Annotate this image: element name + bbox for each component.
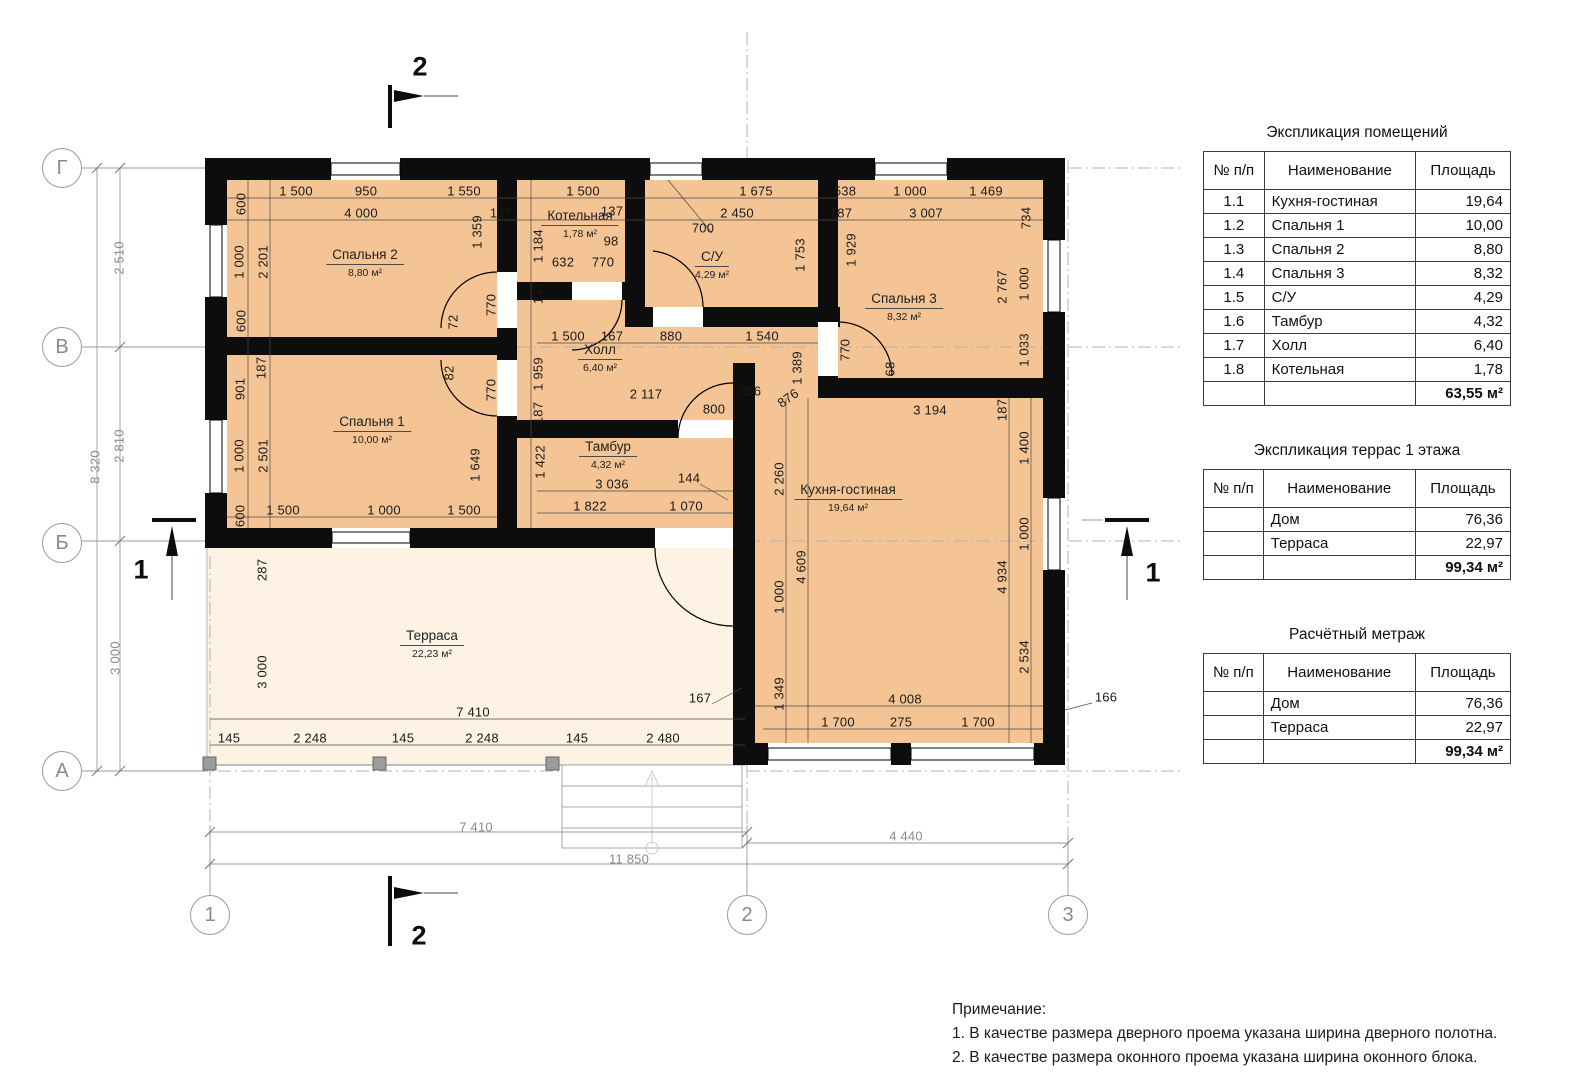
room-area: 8,80 м² bbox=[326, 265, 404, 279]
table-cell: Спальня 3 bbox=[1264, 262, 1415, 286]
dimension-label: 2 248 bbox=[293, 731, 327, 746]
note-line-1: 1. В качестве размера дверного проема ук… bbox=[952, 1022, 1497, 1046]
dimension-label: 1 959 bbox=[531, 357, 546, 391]
dimension-label: 187 bbox=[830, 206, 852, 221]
table-cell bbox=[1204, 382, 1265, 406]
table-header-cell: Наименование bbox=[1264, 152, 1415, 190]
section-marker-label: 1 bbox=[1145, 558, 1160, 589]
dimension-label: 2 117 bbox=[630, 387, 663, 402]
table-row: 1.7Холл6,40 bbox=[1204, 334, 1511, 358]
dimension-label: 1 000 bbox=[232, 245, 247, 279]
dimension-label: 1 700 bbox=[961, 715, 995, 730]
table-cell bbox=[1204, 692, 1264, 716]
dimension-label: 167 bbox=[689, 691, 711, 706]
dimension-label: 145 bbox=[392, 731, 414, 746]
dimension-label: 72 bbox=[446, 315, 461, 330]
table-cell: 1,78 bbox=[1416, 358, 1511, 382]
explication-table: № п/пНаименованиеПлощадьДом76,36Терраса2… bbox=[1203, 469, 1511, 580]
dimension-label: 1 675 bbox=[739, 184, 773, 199]
dimension-label: 1 359 bbox=[470, 215, 485, 249]
room-label: Спальня 28,80 м² bbox=[326, 247, 404, 279]
section-marker-label: 2 bbox=[412, 52, 427, 83]
table-header-cell: Наименование bbox=[1263, 470, 1415, 508]
dimension-label: 2 450 bbox=[720, 206, 754, 221]
table-cell: Спальня 1 bbox=[1264, 214, 1415, 238]
dimension-label: 770 bbox=[592, 255, 614, 270]
dimension-label: 1 000 bbox=[1017, 267, 1032, 301]
table-block-3: Расчётный метраж№ п/пНаименованиеПлощадь… bbox=[1203, 626, 1511, 764]
floor-plan-sheet: 1 5009501 5501 50071 6755381 0001 4694 0… bbox=[0, 0, 1577, 1080]
table-cell: Котельная bbox=[1264, 358, 1415, 382]
dimension-label: 1 000 bbox=[367, 503, 401, 518]
table-total-row: 99,34 м² bbox=[1204, 556, 1511, 580]
room-label: Кухня-гостиная19,64 м² bbox=[794, 482, 902, 514]
axis-marker-А: А bbox=[42, 751, 82, 791]
dimension-label: 356 bbox=[739, 384, 761, 399]
dimension-label: 4 609 bbox=[794, 550, 809, 584]
dimension-label: 145 bbox=[566, 731, 588, 746]
dimension-label: 3 194 bbox=[913, 403, 947, 418]
room-area: 4,32 м² bbox=[579, 457, 637, 471]
dimension-label: 1 033 bbox=[1017, 333, 1032, 367]
table-row: Терраса22,97 bbox=[1204, 716, 1511, 740]
axis-marker-1: 1 bbox=[190, 895, 230, 935]
table-row: 1.8Котельная1,78 bbox=[1204, 358, 1511, 382]
dimension-label: 2 510 bbox=[112, 241, 127, 275]
room-area: 8,32 м² bbox=[865, 309, 943, 323]
table-header-cell: Наименование bbox=[1263, 654, 1415, 692]
dimension-label: 770 bbox=[838, 339, 853, 361]
axis-marker-В: В bbox=[42, 327, 82, 367]
table-cell bbox=[1204, 532, 1264, 556]
table-cell: 4,32 bbox=[1416, 310, 1511, 334]
dimension-label: 4 008 bbox=[888, 692, 922, 707]
table-cell: 8,80 bbox=[1416, 238, 1511, 262]
dimension-label: 187 bbox=[531, 402, 546, 424]
table-cell: 19,64 bbox=[1416, 190, 1511, 214]
room-name: Спальня 2 bbox=[326, 247, 404, 265]
table-cell bbox=[1264, 382, 1415, 406]
room-name: Котельная bbox=[541, 208, 618, 226]
dimension-label: 2 534 bbox=[1017, 640, 1032, 674]
dimension-label: 7 bbox=[624, 184, 631, 199]
table-cell: 1.6 bbox=[1204, 310, 1265, 334]
dimension-label: 2 201 bbox=[256, 245, 271, 279]
dimension-label: 145 bbox=[218, 731, 240, 746]
table-header-cell: № п/п bbox=[1204, 470, 1264, 508]
table-cell: 1.4 bbox=[1204, 262, 1265, 286]
room-name: Терраса bbox=[400, 628, 464, 646]
section-marker-label: 1 bbox=[133, 555, 148, 586]
dimension-label: 632 bbox=[552, 255, 574, 270]
room-area: 10,00 м² bbox=[333, 432, 411, 446]
dimension-label: 600 bbox=[234, 193, 249, 215]
dimension-label: 538 bbox=[834, 184, 856, 199]
table-header-cell: Площадь bbox=[1416, 152, 1511, 190]
dimension-label: 600 bbox=[233, 505, 248, 527]
dimension-label: 1 540 bbox=[745, 329, 779, 344]
dimension-label: 800 bbox=[703, 402, 725, 417]
explication-table: № п/пНаименованиеПлощадь1.1Кухня-гостина… bbox=[1203, 151, 1511, 406]
table-cell: Терраса bbox=[1263, 716, 1415, 740]
dimension-label: 7 410 bbox=[456, 705, 490, 720]
room-area: 22,23 м² bbox=[400, 646, 464, 660]
dimension-label: 68 bbox=[883, 362, 898, 377]
table-cell: 1.7 bbox=[1204, 334, 1265, 358]
table-row: 1.2Спальня 110,00 bbox=[1204, 214, 1511, 238]
room-label: Тамбур4,32 м² bbox=[579, 439, 637, 471]
dimension-label: 1 422 bbox=[533, 445, 548, 479]
dimension-label: 2 810 bbox=[112, 429, 127, 463]
room-area: 6,40 м² bbox=[578, 360, 622, 374]
dimension-label: 275 bbox=[890, 715, 912, 730]
dimension-label: 734 bbox=[1019, 207, 1034, 229]
room-area: 19,64 м² bbox=[794, 500, 902, 514]
table-row: Дом76,36 bbox=[1204, 692, 1511, 716]
dimension-label: 3 007 bbox=[909, 206, 943, 221]
dimension-label: 287 bbox=[255, 559, 270, 581]
room-label: Спальня 110,00 м² bbox=[333, 414, 411, 446]
room-label: С/У4,29 м² bbox=[695, 249, 729, 281]
table-title: Расчётный метраж bbox=[1203, 626, 1511, 644]
table-cell bbox=[1263, 740, 1415, 764]
dimension-label: 1 389 bbox=[790, 351, 805, 385]
dimension-label: 2 767 bbox=[995, 270, 1010, 304]
dimension-label: 1 500 bbox=[566, 184, 600, 199]
table-row: 1.6Тамбур4,32 bbox=[1204, 310, 1511, 334]
table-cell: 22,97 bbox=[1415, 716, 1510, 740]
dimension-label: 4 440 bbox=[889, 829, 923, 844]
dimension-label: 1 500 bbox=[447, 503, 481, 518]
table-cell: С/У bbox=[1264, 286, 1415, 310]
notes-title: Примечание: bbox=[952, 998, 1497, 1022]
room-name: Спальня 3 bbox=[865, 291, 943, 309]
room-name: Холл bbox=[578, 342, 622, 360]
table-cell: 8,32 bbox=[1416, 262, 1511, 286]
room-name: Тамбур bbox=[579, 439, 637, 457]
table-title: Экспликация террас 1 этажа bbox=[1203, 442, 1511, 460]
dimension-label: 3 000 bbox=[255, 655, 270, 689]
table-header-cell: № п/п bbox=[1204, 152, 1265, 190]
table-cell: 22,97 bbox=[1415, 532, 1510, 556]
dimension-label: 187 bbox=[995, 399, 1010, 421]
dimension-label: 700 bbox=[692, 221, 714, 236]
room-name: Спальня 1 bbox=[333, 414, 411, 432]
table-cell bbox=[1204, 716, 1264, 740]
room-area: 1,78 м² bbox=[541, 226, 618, 240]
table-row: Дом76,36 bbox=[1204, 508, 1511, 532]
dimension-label: 1 349 bbox=[772, 677, 787, 711]
table-cell: Тамбур bbox=[1264, 310, 1415, 334]
table-cell: 1.5 bbox=[1204, 286, 1265, 310]
room-name: Кухня-гостиная bbox=[794, 482, 902, 500]
table-cell: Дом bbox=[1263, 508, 1415, 532]
dimension-label: 4 000 bbox=[344, 206, 378, 221]
notes-block: Примечание: 1. В качестве размера дверно… bbox=[952, 998, 1497, 1070]
table-header-cell: Площадь bbox=[1415, 654, 1510, 692]
table-total-row: 99,34 м² bbox=[1204, 740, 1511, 764]
table-cell: 1.2 bbox=[1204, 214, 1265, 238]
dimension-label: 1 469 bbox=[969, 184, 1003, 199]
dimension-label: 137 bbox=[490, 206, 512, 221]
table-row: 1.4Спальня 38,32 bbox=[1204, 262, 1511, 286]
dimension-label: 770 bbox=[484, 294, 499, 316]
dimension-label: 1 070 bbox=[669, 499, 703, 514]
table-cell: 1.3 bbox=[1204, 238, 1265, 262]
table-total-row: 63,55 м² bbox=[1204, 382, 1511, 406]
table-cell: Дом bbox=[1263, 692, 1415, 716]
table-row: 1.3Спальня 28,80 bbox=[1204, 238, 1511, 262]
table-row: 1.5С/У4,29 bbox=[1204, 286, 1511, 310]
room-label: Холл6,40 м² bbox=[578, 342, 622, 374]
table-total-value: 99,34 м² bbox=[1415, 556, 1510, 580]
table-header-cell: № п/п bbox=[1204, 654, 1264, 692]
dimension-label: 166 bbox=[1095, 690, 1117, 705]
table-block-1: Экспликация помещений№ п/пНаименованиеПл… bbox=[1203, 124, 1511, 406]
dimension-label: 2 260 bbox=[772, 462, 787, 496]
dimension-label: 1 000 bbox=[1017, 517, 1032, 551]
room-name: С/У bbox=[695, 249, 729, 267]
table-total-value: 63,55 м² bbox=[1416, 382, 1511, 406]
dimension-label: 1 000 bbox=[893, 184, 927, 199]
table-cell: 76,36 bbox=[1415, 692, 1510, 716]
room-label: Терраса22,23 м² bbox=[400, 628, 464, 660]
explication-table: № п/пНаименованиеПлощадьДом76,36Терраса2… bbox=[1203, 653, 1511, 764]
dimension-label: 1 753 bbox=[793, 238, 808, 272]
table-title: Экспликация помещений bbox=[1203, 124, 1511, 142]
dimension-label: 137 bbox=[531, 282, 546, 304]
table-row: Терраса22,97 bbox=[1204, 532, 1511, 556]
dimension-label: 880 bbox=[660, 329, 682, 344]
dimension-label: 2 501 bbox=[256, 439, 271, 473]
table-cell: Холл bbox=[1264, 334, 1415, 358]
axis-marker-Г: Г bbox=[42, 148, 82, 188]
dimension-label: 1 550 bbox=[447, 184, 481, 199]
table-cell bbox=[1263, 556, 1415, 580]
dimension-label: 187 bbox=[254, 357, 269, 379]
table-cell: 1.8 bbox=[1204, 358, 1265, 382]
table-row: 1.1Кухня-гостиная19,64 bbox=[1204, 190, 1511, 214]
dimension-label: 82 bbox=[442, 366, 457, 381]
dimension-label: 1 822 bbox=[573, 499, 607, 514]
table-cell: 1.1 bbox=[1204, 190, 1265, 214]
dimension-label: 1 500 bbox=[266, 503, 300, 518]
table-block-2: Экспликация террас 1 этажа№ п/пНаименова… bbox=[1203, 442, 1511, 580]
dimension-label: 144 bbox=[678, 471, 700, 486]
table-header-cell: Площадь bbox=[1415, 470, 1510, 508]
dimension-label: 8 320 bbox=[88, 450, 103, 484]
dimension-label: 1 000 bbox=[232, 439, 247, 473]
dimension-label: 3 000 bbox=[108, 641, 123, 675]
table-cell: 6,40 bbox=[1416, 334, 1511, 358]
dimension-label: 1 500 bbox=[279, 184, 313, 199]
dimension-label: 770 bbox=[484, 379, 499, 401]
dimension-label: 7 410 bbox=[459, 820, 493, 835]
table-total-value: 99,34 м² bbox=[1415, 740, 1510, 764]
dimension-label: 950 bbox=[355, 184, 377, 199]
dimension-label: 1 000 bbox=[772, 580, 787, 614]
table-cell: Терраса bbox=[1263, 532, 1415, 556]
section-marker-label: 2 bbox=[411, 921, 426, 952]
dimension-label: 2 248 bbox=[465, 731, 499, 746]
axis-marker-2: 2 bbox=[727, 895, 767, 935]
table-cell bbox=[1204, 556, 1264, 580]
note-line-2: 2. В качестве размера оконного проема ук… bbox=[952, 1046, 1497, 1070]
dimension-label: 600 bbox=[234, 310, 249, 332]
dimension-label: 1 929 bbox=[844, 233, 859, 267]
dimension-label: 1 400 bbox=[1017, 431, 1032, 465]
table-cell bbox=[1204, 740, 1264, 764]
dimension-label: 3 036 bbox=[595, 477, 629, 492]
room-label: Котельная1,78 м² bbox=[541, 208, 618, 240]
axis-marker-3: 3 bbox=[1048, 895, 1088, 935]
room-area: 4,29 м² bbox=[695, 267, 729, 281]
dimension-label: 1 700 bbox=[821, 715, 855, 730]
table-cell: 76,36 bbox=[1415, 508, 1510, 532]
table-cell: 10,00 bbox=[1416, 214, 1511, 238]
room-label: Спальня 38,32 м² bbox=[865, 291, 943, 323]
axis-marker-Б: Б bbox=[42, 523, 82, 563]
dimension-label: 11 850 bbox=[609, 852, 649, 867]
table-cell bbox=[1204, 508, 1264, 532]
table-cell: Кухня-гостиная bbox=[1264, 190, 1415, 214]
dimension-label: 901 bbox=[233, 378, 248, 400]
dimension-label: 4 934 bbox=[995, 560, 1010, 594]
dimension-label: 1 649 bbox=[468, 448, 483, 482]
table-cell: 4,29 bbox=[1416, 286, 1511, 310]
dimension-label: 2 480 bbox=[646, 731, 680, 746]
table-cell: Спальня 2 bbox=[1264, 238, 1415, 262]
